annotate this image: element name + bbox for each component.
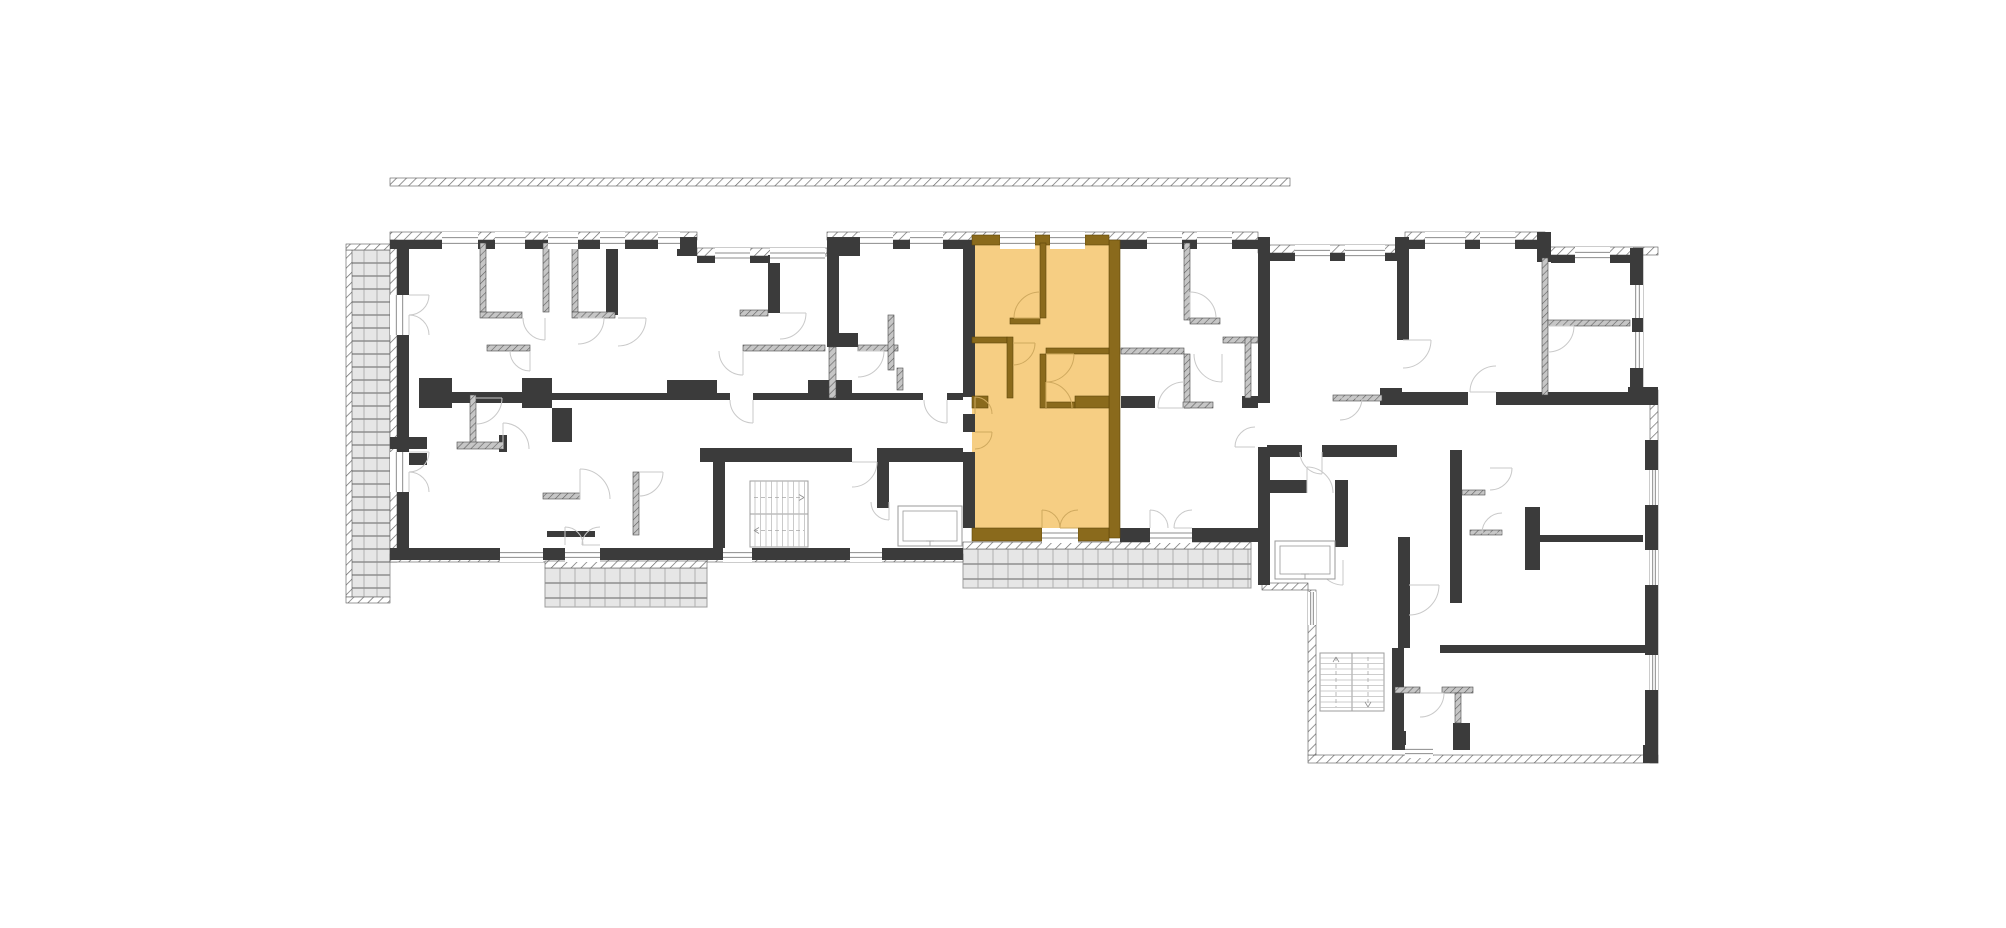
window	[1197, 232, 1232, 249]
door-swing-arc	[730, 400, 753, 423]
balcony-grid	[351, 250, 390, 597]
elevator	[898, 506, 962, 546]
window	[1295, 245, 1330, 261]
floor-plan-page	[0, 0, 2006, 928]
balcony-grid	[545, 568, 707, 607]
window	[1050, 232, 1085, 249]
window	[565, 548, 600, 562]
window	[1405, 745, 1433, 758]
window	[715, 248, 750, 263]
door-swing-arc	[1403, 340, 1431, 368]
door-swing-arc	[1470, 366, 1496, 392]
staircase	[1320, 653, 1384, 711]
door-swing-arc	[1194, 354, 1222, 382]
door-swing-arc	[409, 295, 429, 315]
window	[390, 452, 409, 492]
door-swing-arc	[924, 400, 947, 423]
window	[1150, 528, 1192, 543]
window	[850, 548, 882, 562]
door-swing-arc	[858, 351, 884, 377]
window	[390, 295, 409, 335]
window	[860, 232, 893, 249]
window	[442, 232, 478, 249]
window	[1480, 232, 1515, 249]
door-swing-arc	[1420, 693, 1444, 717]
window	[1042, 528, 1078, 543]
window	[1345, 245, 1385, 261]
door-swing-arc	[639, 472, 663, 496]
window	[1575, 247, 1610, 263]
window	[910, 232, 943, 249]
door-swing-arc	[510, 351, 530, 371]
balcony-grid	[963, 549, 1251, 588]
door-swing-arc	[1300, 452, 1322, 474]
window	[1650, 470, 1658, 505]
door-swing-arc	[780, 313, 806, 339]
window	[548, 232, 578, 249]
door-swing-arc	[852, 462, 877, 487]
window	[495, 232, 525, 249]
floor-plan-svg	[0, 0, 2006, 928]
window	[723, 548, 752, 562]
window	[1632, 332, 1643, 368]
window	[500, 548, 543, 562]
window	[1425, 232, 1465, 249]
elevator	[1275, 541, 1335, 579]
door-swing-arc	[1548, 326, 1574, 352]
door-swing-arc	[1409, 585, 1439, 615]
staircase	[750, 481, 808, 547]
door-swing-arc	[409, 472, 429, 492]
door-swing-arc	[1235, 427, 1255, 447]
window	[1632, 285, 1643, 318]
window	[1650, 655, 1658, 690]
window	[600, 232, 625, 249]
door-swing-arc	[523, 318, 545, 340]
window	[658, 232, 680, 249]
door-swing-arc	[618, 318, 646, 346]
window	[1000, 232, 1035, 249]
window	[1650, 550, 1658, 585]
door-swing-arc	[409, 315, 429, 335]
door-swing-arc	[1158, 382, 1184, 408]
door-swing-arc	[1190, 292, 1216, 318]
door-swing-arc	[578, 318, 604, 344]
window	[770, 248, 825, 263]
door-swing-arc	[1174, 510, 1192, 528]
door-swing-arc	[719, 351, 743, 375]
door-swing-arc	[1490, 468, 1512, 490]
door-swing-arc	[580, 469, 610, 499]
window	[1308, 592, 1316, 625]
door-swing-arc	[1150, 510, 1168, 528]
window	[1147, 232, 1182, 249]
